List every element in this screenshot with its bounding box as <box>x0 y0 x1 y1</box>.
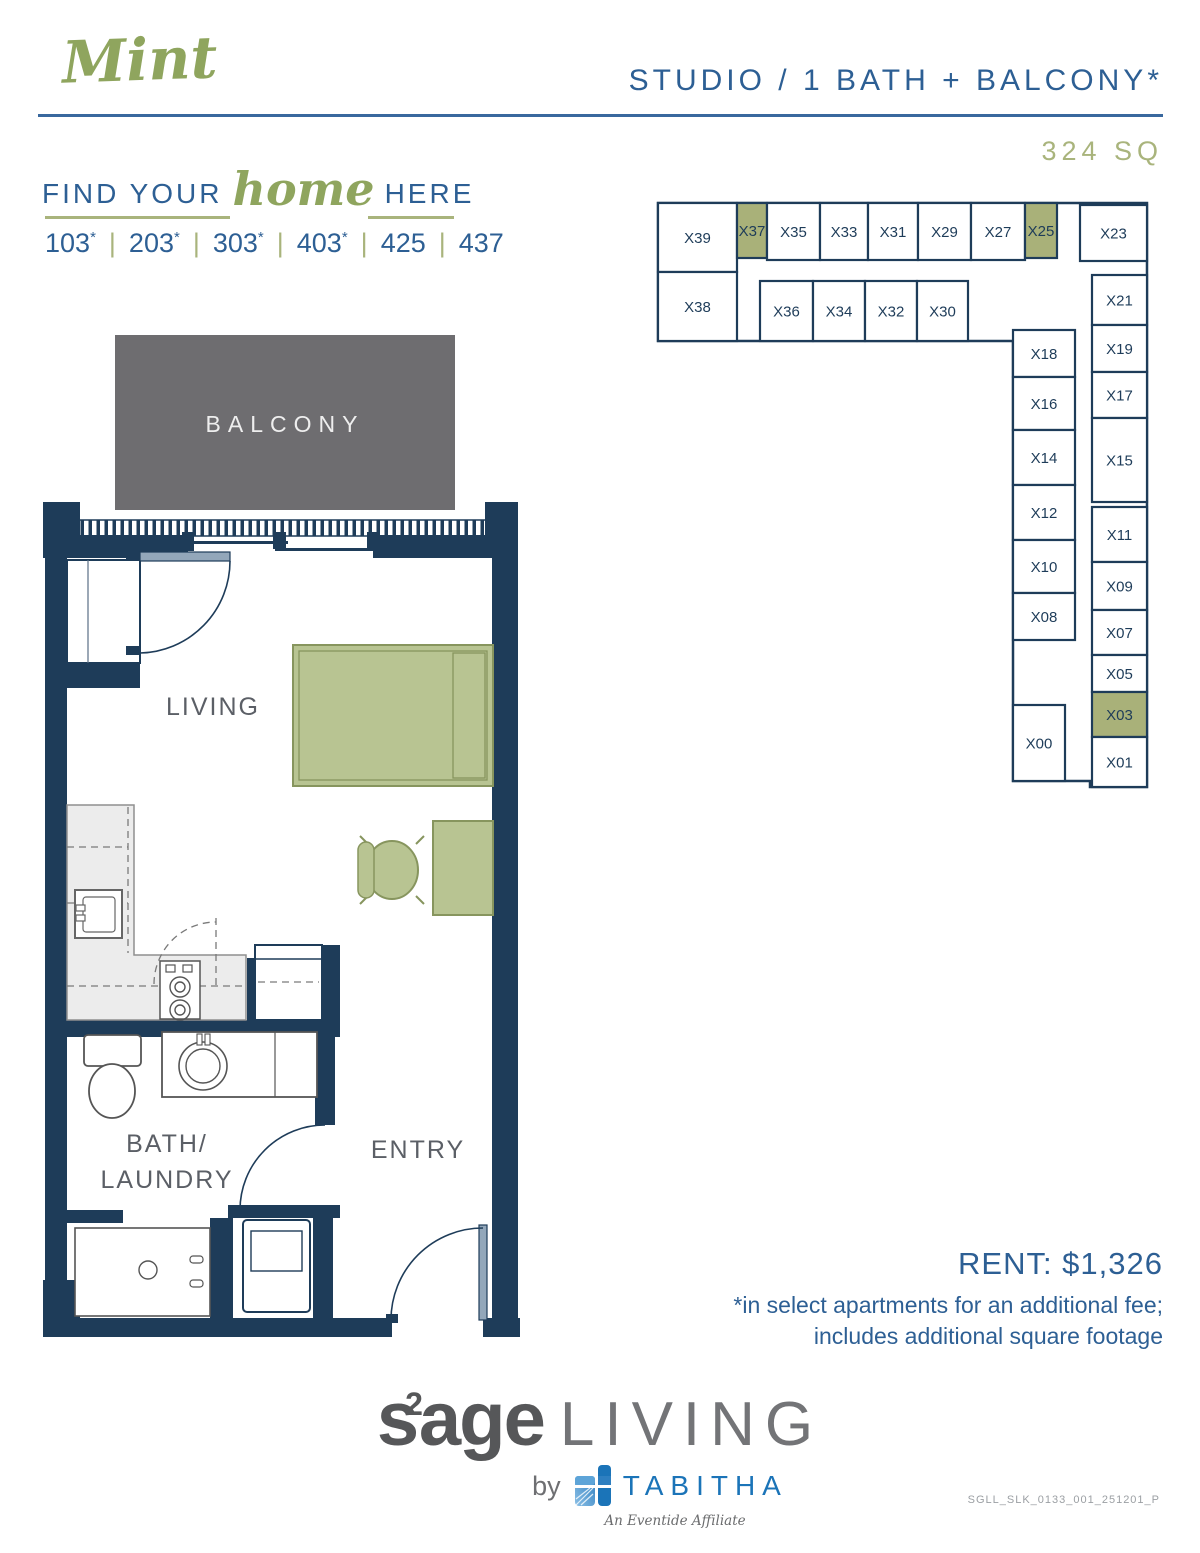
sage-living-wordmark: s 2 age LIVING <box>377 1376 823 1463</box>
brand-superscript-2: 2 <box>405 1386 423 1423</box>
rent-note-line2: includes additional square footage <box>733 1321 1163 1352</box>
tagline-script: home <box>233 162 375 216</box>
keyplan-cell-label: X38 <box>684 299 711 316</box>
keyplan-cell-label: X05 <box>1106 666 1133 683</box>
brand-logo: s 2 age LIVING by <box>0 1376 1200 1529</box>
by-label: by <box>532 1471 561 1502</box>
keyplan-cell-label: X33 <box>831 224 858 241</box>
keyplan-cell-label: X01 <box>1106 755 1133 772</box>
entry-label: ENTRY <box>371 1136 465 1164</box>
tabitha-cross-icon <box>573 1463 613 1509</box>
tagline-pre: FIND YOUR <box>42 178 223 210</box>
keyplan-cell-label: X03 <box>1106 707 1133 724</box>
by-tabitha-row: by TABITHA <box>532 1463 788 1509</box>
toilet <box>84 1035 141 1118</box>
keyplan-cell-label: X19 <box>1106 341 1133 358</box>
closet-door <box>126 550 230 655</box>
square-footage: 324 SQ <box>1041 136 1163 167</box>
unit-number: 437 <box>459 228 504 258</box>
key-plan-drawing: X39X37X35X33X31X29X27X25X23X38X36X34X32X… <box>650 195 1170 795</box>
header-divider <box>38 114 1163 117</box>
keyplan-cell-label: X30 <box>929 304 956 321</box>
keyplan-cell-label: X32 <box>878 304 905 321</box>
shower <box>75 1228 210 1316</box>
building-key-plan: X39X37X35X33X31X29X27X25X23X38X36X34X32X… <box>650 195 1170 795</box>
keyplan-cell-label: X34 <box>826 304 853 321</box>
unit-number-list: 103*|203*|303*|403*|425|437 <box>45 228 504 259</box>
bath-label-line1: BATH/ <box>126 1130 208 1158</box>
keyplan-cell-label: X00 <box>1026 736 1053 753</box>
unit-number: 403* <box>297 228 348 258</box>
refrigerator <box>255 945 322 1020</box>
plan-name: Mint <box>61 23 218 96</box>
keyplan-cell-label: X35 <box>780 224 807 241</box>
keyplan-cell-label: X08 <box>1031 609 1058 626</box>
document-code: SGLL_SLK_0133_001_251201_P <box>968 1494 1160 1506</box>
bath-vanity <box>162 1032 317 1097</box>
rent-amount: RENT: $1,326 <box>733 1246 1163 1282</box>
keyplan-cell-label: X17 <box>1106 388 1133 405</box>
unit-separator: | <box>361 228 368 258</box>
tabitha-wordmark: TABITHA <box>623 1470 788 1502</box>
keyplan-cell-label: X31 <box>880 224 907 241</box>
keyplan-cell-label: X18 <box>1031 346 1058 363</box>
kitchen-sink <box>75 890 122 938</box>
keyplan-cell-label: X07 <box>1106 625 1133 642</box>
unit-separator: | <box>193 228 200 258</box>
rent-note-line1: *in select apartments for an additional … <box>733 1290 1163 1321</box>
keyplan-cell-label: X21 <box>1106 293 1133 310</box>
desk <box>433 821 493 915</box>
bed <box>293 645 493 786</box>
keyplan-cell-label: X16 <box>1031 396 1058 413</box>
chair <box>358 836 424 904</box>
keyplan-cell-label: X10 <box>1031 559 1058 576</box>
bath-label-line2: LAUNDRY <box>100 1166 233 1194</box>
tagline-underline-right <box>368 216 454 219</box>
keyplan-cell-label: X27 <box>985 224 1012 241</box>
bath-door-swing <box>240 1125 325 1210</box>
affiliate-tagline: An Eventide Affiliate <box>604 1513 745 1529</box>
washer-dryer <box>243 1220 310 1312</box>
living-label: LIVING <box>166 693 260 721</box>
stove <box>160 961 200 1020</box>
brand-living: LIVING <box>560 1389 823 1460</box>
unit-separator: | <box>439 228 446 258</box>
floor-plan-drawing: BALCONY <box>30 320 520 1350</box>
unit-separator: | <box>109 228 116 258</box>
keyplan-cell-label: X29 <box>931 224 958 241</box>
tagline-post: HERE <box>385 178 475 210</box>
keyplan-cell-label: X09 <box>1106 579 1133 596</box>
plan-type: STUDIO / 1 BATH + BALCONY* <box>629 64 1163 98</box>
unit-number: 103* <box>45 228 96 258</box>
unit-separator: | <box>277 228 284 258</box>
entry-door <box>386 1225 487 1323</box>
keyplan-cell-label: X25 <box>1028 223 1055 240</box>
brand-age: age <box>419 1376 544 1463</box>
keyplan-cell-label: X14 <box>1031 450 1058 467</box>
keyplan-cell-label: X23 <box>1100 226 1127 243</box>
keyplan-cell-label: X39 <box>684 230 711 247</box>
keyplan-cell-label: X36 <box>773 304 800 321</box>
keyplan-cell-label: X37 <box>739 223 766 240</box>
keyplan-cell-label: X12 <box>1031 505 1058 522</box>
unit-number: 203* <box>129 228 180 258</box>
unit-number: 425 <box>381 228 426 258</box>
pricing-block: RENT: $1,326 *in select apartments for a… <box>733 1246 1163 1352</box>
unit-number: 303* <box>213 228 264 258</box>
balcony-label: BALCONY <box>206 411 365 437</box>
tagline-underline-left <box>45 216 230 219</box>
keyplan-cell-label: X11 <box>1107 527 1133 544</box>
flyer-page: Mint STUDIO / 1 BATH + BALCONY* 324 SQ F… <box>0 0 1200 1553</box>
tagline: FIND YOUR home HERE <box>42 160 474 214</box>
keyplan-cell-label: X15 <box>1106 453 1133 470</box>
